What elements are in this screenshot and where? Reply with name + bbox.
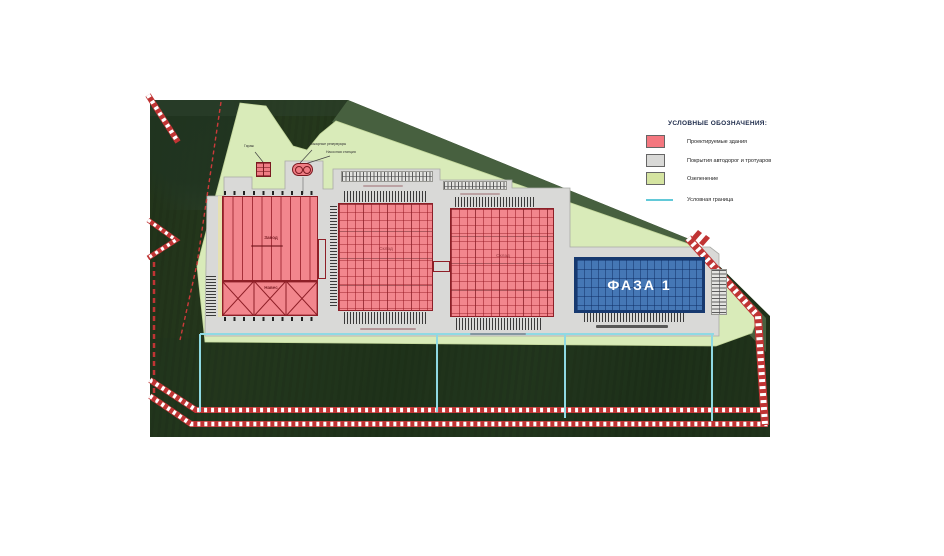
building3-text-blur-bottom: [470, 333, 526, 335]
red-striped-road-bottom-1: [150, 380, 768, 410]
legend-item-boundary: Условная граница: [646, 197, 733, 203]
building3-docks-south: [456, 318, 542, 330]
building1-area-text-blur: [251, 245, 283, 247]
red-striped-road-bottom-1-hatch: [150, 380, 768, 410]
legend-swatch-green: [646, 172, 665, 185]
canopy-label: Навес: [256, 285, 286, 290]
legend-label-pavement: Покрытия автодорог и тротуаров: [687, 158, 771, 164]
building3-text-blur-top: [460, 193, 500, 195]
phase1-label: ФАЗА 1: [607, 277, 671, 293]
parking-strip-north-1: [341, 171, 433, 182]
legend-item-pavement: Покрытия автодорог и тротуаров: [646, 154, 771, 167]
fire-tank-2: [303, 166, 311, 174]
building2-text-blur-top: [363, 185, 403, 187]
garage-label: Гараж: [244, 144, 254, 148]
building2-warehouse: Склад: [338, 203, 433, 311]
parking-strip-east: [711, 269, 727, 315]
building1-right-annex: [318, 239, 326, 279]
building1-canopy: Навес: [222, 281, 318, 316]
building1-parking-west: [206, 276, 216, 316]
building2-docks-north: [344, 191, 428, 202]
garage-building: [256, 162, 271, 177]
legend-label-greenery: Озеленение: [687, 176, 718, 182]
fire-tanks-label: Пожарные резервуары: [309, 142, 346, 146]
pump-station-label: Насосная станция: [326, 150, 356, 154]
building3-label: Склад: [468, 253, 538, 258]
building1-factory: Завод: [222, 196, 318, 281]
building1-ticks-bottom: [224, 317, 316, 321]
legend-label-boundary: Условная граница: [687, 197, 733, 203]
building3-warehouse: Склад: [450, 208, 554, 317]
building3-docks-north: [455, 197, 535, 207]
building1-label: Завод: [243, 235, 299, 240]
building2-text-blur-bottom: [360, 328, 416, 330]
legend-swatch-red: [646, 135, 665, 148]
site-plan-image: Завод Навес Гараж Пожарные резервуары На…: [0, 0, 944, 556]
phase1-building: ФАЗА 1: [574, 257, 705, 313]
parking-strip-north-2: [443, 181, 507, 190]
building2-docks-south: [344, 312, 428, 324]
fire-tank-1: [295, 166, 303, 174]
building2-label: Склад: [351, 246, 421, 251]
legend-item-buildings: Проектируемые здания: [646, 135, 747, 148]
phase1-docks-south: [584, 313, 686, 322]
building2-docks-west: [330, 206, 337, 306]
legend-line-cyan: [646, 199, 673, 201]
legend-swatch-gray: [646, 154, 665, 167]
legend-item-greenery: Озеленение: [646, 172, 718, 185]
building1-roof-ticks-top: [224, 191, 316, 195]
fire-tanks-structure: [292, 163, 313, 176]
phase1-text-blur-bottom: [596, 325, 668, 328]
legend-label-buildings: Проектируемые здания: [687, 139, 747, 145]
warehouse-connector: [433, 261, 450, 272]
legend-title: УСЛОВНЫЕ ОБОЗНАЧЕНИЯ:: [668, 120, 767, 127]
